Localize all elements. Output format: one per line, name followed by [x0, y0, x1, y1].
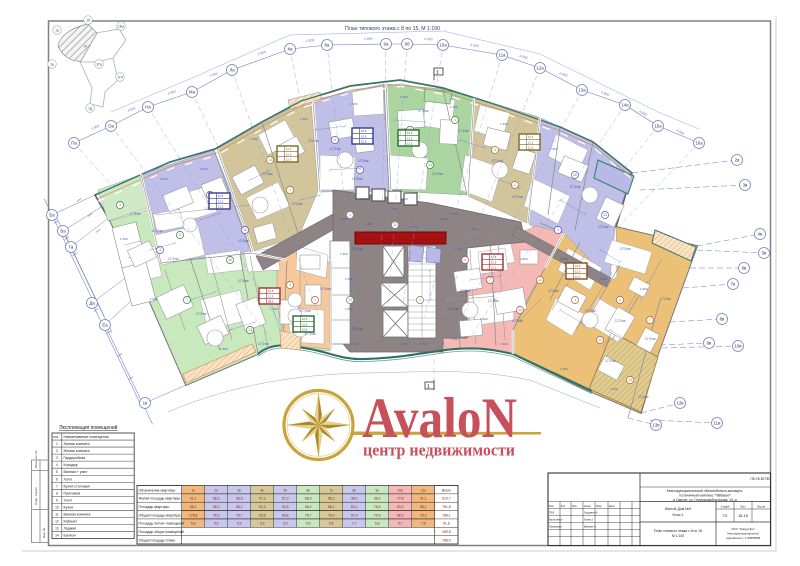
svg-text:Ва: Ва: [60, 229, 66, 234]
svg-text:17,9 м²: 17,9 м²: [238, 279, 250, 283]
svg-text:17,9 м²: 17,9 м²: [358, 159, 370, 163]
svg-text:Ванная + узел: Ванная + узел: [64, 470, 88, 474]
svg-text:1: 1: [119, 203, 121, 207]
svg-text:1 500: 1 500: [560, 367, 568, 371]
svg-text:13: 13: [538, 278, 542, 282]
svg-text:4: 4: [289, 283, 291, 287]
svg-text:17,9 м²: 17,9 м²: [645, 337, 657, 341]
svg-text:83,9: 83,9: [397, 505, 404, 509]
svg-text:Площадь летних помещений: Площадь летних помещений: [139, 522, 185, 526]
svg-text:17,9 м²: 17,9 м²: [615, 319, 627, 323]
svg-text:3в: 3в: [743, 183, 748, 188]
svg-text:1: 1: [56, 442, 58, 446]
svg-text:1 500: 1 500: [400, 95, 408, 99]
svg-text:Ла: Ла: [229, 68, 235, 73]
svg-text:92,8: 92,8: [282, 505, 289, 509]
svg-text:1 500: 1 500: [440, 217, 448, 221]
svg-text:ГП: ГП: [723, 514, 728, 518]
svg-text:13: 13: [55, 527, 59, 531]
svg-text:9: 9: [56, 498, 58, 502]
svg-text:ПБ.УБ.ВГ.ПВ: ПБ.УБ.ВГ.ПВ: [750, 477, 769, 481]
svg-text:1 500: 1 500: [150, 297, 158, 301]
svg-text:57,3: 57,3: [259, 497, 266, 501]
svg-text:1 500: 1 500: [410, 225, 418, 229]
svg-text:Ма: Ма: [189, 90, 196, 95]
svg-text:17,9 м²: 17,9 м²: [300, 309, 312, 313]
svg-text:Листов: Листов: [757, 506, 766, 509]
svg-text:17,9 м²: 17,9 м²: [130, 212, 142, 216]
svg-text:Изм: Изм: [549, 505, 554, 508]
svg-text:5,3: 5,3: [283, 522, 288, 526]
svg-text:17,9 м²: 17,9 м²: [512, 319, 524, 323]
svg-text:Экспликация помещений: Экспликация помещений: [59, 424, 118, 431]
svg-text:Многофункциональный: Многофункциональный: [727, 532, 759, 536]
svg-text:5,8: 5,8: [191, 522, 196, 526]
svg-text:1 500: 1 500: [480, 317, 488, 321]
svg-text:4: 4: [56, 463, 58, 467]
svg-text:12,5: 12,5: [302, 322, 308, 326]
svg-text:1 500: 1 500: [400, 342, 408, 346]
svg-text:17,9 м²: 17,9 м²: [598, 225, 610, 229]
svg-text:12,5: 12,5: [302, 317, 308, 321]
svg-text:3: 3: [56, 456, 58, 460]
svg-text:Обозначение квартиры:: Обозначение квартиры:: [139, 488, 177, 492]
svg-text:5,5: 5,5: [329, 522, 334, 526]
svg-text:П18: П18: [549, 511, 555, 515]
svg-text:4: 4: [619, 298, 621, 302]
svg-text:13: 13: [428, 163, 432, 167]
svg-text:12,5: 12,5: [575, 269, 581, 273]
svg-text:17,9 м²: 17,9 м²: [620, 247, 632, 251]
svg-text:1: 1: [419, 298, 421, 302]
svg-text:12,5: 12,5: [218, 194, 224, 198]
svg-text:12,5: 12,5: [302, 328, 308, 332]
svg-text:12,5: 12,5: [218, 199, 224, 203]
svg-text:78,3: 78,3: [213, 513, 220, 517]
svg-text:в Одессе, ул. Генуэзская/Бирюз: в Одессе, ул. Генуэзская/Бирюзова, 1/1-а: [673, 498, 737, 502]
svg-text:41,1: 41,1: [420, 497, 427, 501]
svg-text:17,9 м²: 17,9 м²: [196, 312, 208, 316]
svg-text:1Ба: 1Ба: [118, 25, 124, 29]
svg-text:5в: 5в: [762, 251, 767, 256]
svg-text:1в: 1в: [50, 63, 54, 67]
svg-text:1 500: 1 500: [550, 147, 558, 151]
svg-text:Кухня: Кухня: [64, 505, 74, 509]
svg-text:58,1: 58,1: [328, 505, 335, 509]
svg-text:17,9 м²: 17,9 м²: [152, 229, 164, 233]
svg-text:На: На: [145, 105, 151, 110]
svg-text:10: 10: [55, 505, 59, 509]
svg-text:1в: 1в: [143, 401, 148, 406]
svg-text:17,9 м²: 17,9 м²: [352, 247, 364, 251]
svg-text:1а: 1а: [55, 29, 59, 33]
svg-text:7: 7: [186, 298, 188, 302]
svg-text:519,7: 519,7: [442, 497, 451, 501]
svg-text:17,9 м²: 17,9 м²: [512, 195, 524, 199]
svg-text:Холл: Холл: [64, 477, 72, 481]
svg-text:7: 7: [649, 318, 651, 322]
svg-text:8к: 8к: [353, 488, 357, 492]
svg-text:Лоджия: Лоджия: [64, 527, 77, 531]
svg-text:17,9 м²: 17,9 м²: [638, 395, 650, 399]
svg-text:17,9 м²: 17,9 м²: [605, 359, 617, 363]
svg-text:5,9: 5,9: [306, 522, 311, 526]
svg-text:6к: 6к: [307, 488, 311, 492]
svg-text:17,9 м²: 17,9 м²: [448, 307, 460, 311]
svg-text:Верник З: Верник З: [584, 525, 596, 529]
svg-text:1 500: 1 500: [300, 117, 308, 121]
svg-text:7в: 7в: [731, 282, 736, 287]
svg-text:Балкон: Балкон: [64, 534, 76, 538]
svg-text:1 500: 1 500: [200, 167, 208, 171]
svg-text:58,2: 58,2: [236, 505, 243, 509]
svg-text:78,3: 78,3: [420, 513, 427, 517]
svg-text:12,5: 12,5: [286, 147, 292, 151]
svg-text:Подп: Подп: [596, 505, 603, 508]
svg-text:Кухня-столовая: Кухня-столовая: [64, 484, 90, 488]
svg-text:4: 4: [179, 233, 181, 237]
svg-text:1 500: 1 500: [640, 287, 648, 291]
svg-text:12в: 12в: [676, 401, 684, 406]
svg-text:1: 1: [436, 70, 439, 76]
svg-text:Ка: Ка: [288, 47, 294, 52]
svg-text:17,9 м²: 17,9 м²: [570, 185, 582, 189]
svg-text:77,8: 77,8: [397, 497, 404, 501]
svg-text:4: 4: [334, 138, 336, 142]
svg-text:1б: 1б: [86, 19, 90, 23]
svg-text:79,9: 79,9: [374, 513, 381, 517]
svg-text:Ванная комната: Ванная комната: [64, 512, 91, 516]
svg-text:Кол: Кол: [561, 505, 566, 508]
svg-text:1 500: 1 500: [120, 237, 128, 241]
svg-text:6: 6: [56, 477, 58, 481]
svg-text:13: 13: [248, 328, 252, 332]
svg-text:11а: 11а: [499, 53, 507, 58]
svg-text:17,9 м²: 17,9 м²: [352, 177, 364, 181]
svg-text:12,5: 12,5: [528, 135, 534, 139]
svg-text:4в: 4в: [758, 232, 763, 237]
svg-text:1 500: 1 500: [360, 197, 368, 201]
svg-text:Лист: Лист: [572, 505, 578, 508]
svg-text:38,0: 38,0: [374, 497, 381, 501]
svg-text:17,9 м²: 17,9 м²: [660, 297, 672, 301]
svg-text:11к: 11к: [421, 488, 427, 492]
svg-text:4: 4: [464, 258, 466, 262]
svg-text:Кабинет: Кабинет: [64, 520, 78, 524]
svg-text:17,9 м²: 17,9 м²: [418, 109, 430, 113]
svg-text:5,3: 5,3: [260, 522, 265, 526]
svg-text:78,8: 78,8: [374, 505, 381, 509]
svg-text:Блок 1: Блок 1: [672, 513, 683, 517]
svg-text:Жилая комната: Жилая комната: [64, 449, 90, 453]
svg-text:17,9 м²: 17,9 м²: [458, 129, 470, 133]
svg-text:План типового этажа с 8 по 15: План типового этажа с 8 по 15: [654, 529, 702, 533]
svg-text:7к: 7к: [330, 488, 334, 492]
svg-text:Га: Га: [69, 245, 74, 250]
svg-text:Выполнил: Выполнил: [549, 518, 563, 522]
svg-text:8в: 8в: [720, 317, 725, 322]
svg-text:1Га: 1Га: [96, 63, 102, 67]
svg-text:92,3: 92,3: [259, 505, 266, 509]
svg-text:Проверил: Проверил: [549, 525, 562, 529]
svg-text:поз: поз: [53, 435, 58, 439]
svg-text:5: 5: [56, 470, 58, 474]
svg-text:17,9 м²: 17,9 м²: [168, 257, 180, 261]
svg-text:Подп. и дата: Подп. и дата: [34, 487, 38, 505]
svg-text:Всего: Всего: [442, 488, 451, 492]
svg-text:1 500: 1 500: [450, 212, 458, 216]
svg-text:17,9 м²: 17,9 м²: [258, 342, 270, 346]
svg-text:Оа: Оа: [108, 124, 114, 129]
svg-text:4 800: 4 800: [364, 37, 373, 41]
svg-text:93,8: 93,8: [259, 513, 266, 517]
svg-text:10: 10: [518, 308, 522, 312]
svg-text:10: 10: [598, 338, 602, 342]
svg-text:12,5: 12,5: [268, 289, 274, 293]
svg-text:15а: 15а: [654, 124, 662, 129]
svg-text:11в: 11в: [714, 421, 722, 426]
svg-text:Гардеробная: Гардеробная: [64, 456, 86, 460]
svg-text:12,5: 12,5: [218, 205, 224, 209]
svg-text:5к: 5к: [284, 488, 288, 492]
svg-text:2в: 2в: [735, 158, 740, 163]
svg-text:88,9: 88,9: [397, 513, 404, 517]
svg-text:Худомяг А: Худомяг А: [584, 511, 598, 515]
svg-text:7: 7: [56, 484, 58, 488]
svg-text:5,8: 5,8: [375, 522, 380, 526]
svg-text:1 500: 1 500: [340, 252, 348, 256]
svg-text:№док: №док: [584, 505, 592, 508]
svg-text:1: 1: [557, 228, 559, 232]
svg-text:12,5: 12,5: [407, 131, 413, 135]
svg-text:10в: 10в: [734, 344, 742, 349]
svg-text:12,5: 12,5: [268, 294, 274, 298]
svg-text:1 500: 1 500: [350, 342, 358, 346]
svg-text:13в: 13в: [652, 423, 660, 428]
svg-text:13: 13: [348, 298, 352, 302]
svg-text:горкомплекс т.1 66555555: горкомплекс т.1 66555555: [726, 536, 761, 540]
svg-text:План типового этажа с 8 по 15,: План типового этажа с 8 по 15, М 1:100: [345, 26, 440, 32]
svg-text:Холл: Холл: [64, 498, 72, 502]
svg-text:13: 13: [603, 213, 607, 217]
svg-text:1 500: 1 500: [520, 257, 528, 261]
svg-text:1 500: 1 500: [500, 122, 508, 126]
svg-text:4: 4: [159, 248, 161, 252]
svg-text:1 500: 1 500: [345, 307, 353, 311]
svg-text:57,3: 57,3: [282, 497, 289, 501]
svg-text:12,5: 12,5: [407, 142, 413, 146]
svg-text:гостиничный комплекс "ПВВавил": гостиничный комплекс "ПВВавил": [679, 494, 732, 498]
svg-text:1 500: 1 500: [350, 102, 358, 106]
svg-text:10: 10: [573, 173, 577, 177]
svg-text:12,5: 12,5: [361, 134, 367, 138]
svg-text:12: 12: [55, 520, 59, 524]
svg-text:1Гб: 1Гб: [117, 76, 123, 80]
svg-text:4к: 4к: [261, 488, 265, 492]
svg-text:38,0: 38,0: [351, 497, 358, 501]
svg-text:Взам. инв. №: Взам. инв. №: [34, 451, 38, 468]
svg-text:7,7: 7,7: [352, 522, 357, 526]
svg-text:17,9 м²: 17,9 м²: [432, 172, 444, 176]
svg-text:58,9: 58,9: [305, 497, 312, 501]
svg-text:58,9: 58,9: [236, 497, 243, 501]
svg-text:10а: 10а: [439, 43, 447, 48]
svg-text:Па: Па: [71, 141, 77, 146]
svg-text:1 500: 1 500: [420, 342, 428, 346]
svg-text:Жилой Дом №9: Жилой Дом №9: [665, 507, 691, 511]
svg-text:8а: 8а: [325, 43, 330, 48]
svg-text:Общая площадь квартиры:: Общая площадь квартиры:: [139, 513, 182, 517]
svg-text:Да: Да: [89, 301, 95, 306]
svg-text:1 500: 1 500: [365, 222, 373, 226]
svg-text:58,1: 58,1: [190, 505, 197, 509]
svg-text:1 500: 1 500: [160, 177, 168, 181]
svg-text:Прихожая: Прихожая: [64, 491, 81, 495]
svg-text:Р: Р: [84, 44, 87, 49]
svg-text:1: 1: [349, 213, 351, 217]
svg-text:83,1: 83,1: [351, 505, 358, 509]
svg-text:10: 10: [393, 223, 397, 227]
svg-text:Многофункциональный «Жилеибель: Многофункциональный «Жилеибельно-жилищно…: [667, 489, 743, 493]
svg-text:4: 4: [494, 148, 496, 152]
svg-text:17,9 м²: 17,9 м²: [460, 289, 472, 293]
svg-text:1 500: 1 500: [455, 247, 463, 251]
svg-text:Коридор: Коридор: [64, 463, 78, 467]
svg-text:12,5: 12,5: [491, 255, 497, 259]
svg-text:1 500: 1 500: [450, 337, 458, 341]
svg-text:9б: 9б: [405, 42, 410, 47]
svg-text:78,7: 78,7: [236, 513, 243, 517]
svg-text:788,1: 788,1: [442, 513, 451, 517]
svg-text:13: 13: [268, 158, 272, 162]
svg-text:91,8: 91,8: [443, 522, 450, 526]
svg-text:12,5: 12,5: [361, 129, 367, 133]
svg-text:17,9 м²: 17,9 м²: [492, 159, 504, 163]
svg-text:9а: 9а: [384, 42, 389, 47]
svg-text:17,9 м²: 17,9 м²: [330, 147, 342, 151]
svg-text:Площадь квартиры:: Площадь квартиры:: [139, 505, 170, 509]
svg-text:41,1: 41,1: [190, 497, 197, 501]
svg-text:12,5: 12,5: [361, 140, 367, 144]
svg-text:12,5: 12,5: [575, 264, 581, 268]
svg-text:12,5: 12,5: [407, 136, 413, 140]
svg-text:1: 1: [454, 118, 456, 122]
svg-text:12,5: 12,5: [528, 140, 534, 144]
svg-text:Общая площадь этажа: Общая площадь этажа: [139, 538, 175, 542]
svg-text:Жилая комната: Жилая комната: [64, 442, 90, 446]
svg-text:7: 7: [314, 298, 316, 302]
svg-text:17,9 м²: 17,9 м²: [585, 309, 597, 313]
svg-text:12,5: 12,5: [286, 158, 292, 162]
svg-text:58,1: 58,1: [420, 505, 427, 509]
svg-text:Инв. №: Инв. №: [42, 527, 46, 538]
svg-text:12,5: 12,5: [575, 275, 581, 279]
svg-text:Гринь І: Гринь І: [584, 518, 593, 522]
svg-text:17,9 м²: 17,9 м²: [262, 172, 274, 176]
svg-text:178,8: 178,8: [189, 513, 198, 517]
svg-text:17,9 м²: 17,9 м²: [488, 299, 500, 303]
svg-text:58,3: 58,3: [328, 497, 335, 501]
svg-text:1 500: 1 500: [220, 347, 228, 351]
svg-text:18-15: 18-15: [738, 514, 748, 518]
svg-text:1: 1: [574, 298, 576, 302]
svg-text:12а: 12а: [536, 66, 544, 71]
svg-text:1 500: 1 500: [400, 197, 408, 201]
svg-text:14: 14: [55, 534, 59, 538]
svg-text:13а: 13а: [578, 88, 586, 93]
svg-text:9к: 9к: [376, 488, 380, 492]
svg-text:5,7: 5,7: [398, 522, 403, 526]
svg-text:1 500: 1 500: [345, 277, 353, 281]
svg-text:М 1:100: М 1:100: [672, 534, 684, 538]
svg-text:17,9 м²: 17,9 м²: [238, 239, 250, 243]
svg-text:58,2: 58,2: [305, 505, 312, 509]
svg-text:97,4: 97,4: [351, 513, 358, 517]
svg-text:16а: 16а: [695, 141, 703, 146]
svg-text:13: 13: [628, 378, 632, 382]
svg-text:1: 1: [289, 188, 291, 192]
svg-text:8: 8: [56, 491, 58, 495]
svg-text:93,8: 93,8: [282, 513, 289, 517]
svg-text:ООО "Гранд При": ООО "Гранд При": [731, 527, 755, 531]
svg-text:1 500: 1 500: [560, 257, 568, 261]
svg-text:17,9 м²: 17,9 м²: [320, 287, 332, 291]
svg-text:17,9 м²: 17,9 м²: [292, 202, 304, 206]
svg-text:1 500: 1 500: [600, 277, 608, 281]
svg-text:Жилая площадь квартиры:: Жилая площадь квартиры:: [139, 497, 181, 501]
svg-text:1 500: 1 500: [610, 387, 618, 391]
svg-text:14а: 14а: [621, 103, 629, 108]
svg-text:58,3: 58,3: [213, 497, 220, 501]
svg-text:Дата: Дата: [609, 505, 615, 508]
svg-text:499,8: 499,8: [442, 530, 451, 534]
svg-text:12,5: 12,5: [491, 266, 497, 270]
svg-text:12,5: 12,5: [286, 152, 292, 156]
svg-text:10: 10: [228, 258, 232, 262]
svg-text:1 500: 1 500: [390, 207, 398, 211]
svg-text:1 500: 1 500: [450, 105, 458, 109]
svg-text:2: 2: [56, 449, 58, 453]
svg-text:7,8: 7,8: [421, 522, 426, 526]
svg-text:1 500: 1 500: [500, 342, 508, 346]
svg-text:58,2: 58,2: [213, 505, 220, 509]
svg-text:9в: 9в: [707, 341, 712, 346]
svg-text:12,5: 12,5: [528, 146, 534, 150]
svg-text:10: 10: [243, 228, 247, 232]
svg-text:1 500: 1 500: [470, 227, 478, 231]
svg-text:78,7: 78,7: [305, 513, 312, 517]
svg-text:3к: 3к: [238, 488, 242, 492]
svg-text:10к: 10к: [398, 488, 404, 492]
svg-text:Ба: Ба: [49, 213, 55, 218]
svg-text:17,9 м²: 17,9 м²: [352, 327, 364, 331]
svg-text:7: 7: [514, 183, 516, 187]
svg-text:Наименование помещения: Наименование помещения: [64, 435, 109, 439]
svg-text:11: 11: [55, 512, 59, 516]
svg-text:17,9 м²: 17,9 м²: [548, 289, 560, 293]
svg-text:Еа: Еа: [102, 323, 108, 328]
svg-text:7: 7: [489, 278, 491, 282]
svg-text:Площадь общих помещений: Площадь общих помещений: [139, 530, 184, 534]
svg-text:5,5: 5,5: [214, 522, 219, 526]
svg-text:Лист: Лист: [740, 506, 746, 509]
svg-text:5,9: 5,9: [237, 522, 242, 526]
svg-text:17,9 м²: 17,9 м²: [308, 139, 320, 143]
svg-text:78,3: 78,3: [328, 513, 335, 517]
svg-text:Стадия: Стадия: [721, 506, 730, 509]
svg-text:1д: 1д: [88, 107, 92, 111]
svg-text:2к: 2к: [215, 488, 219, 492]
